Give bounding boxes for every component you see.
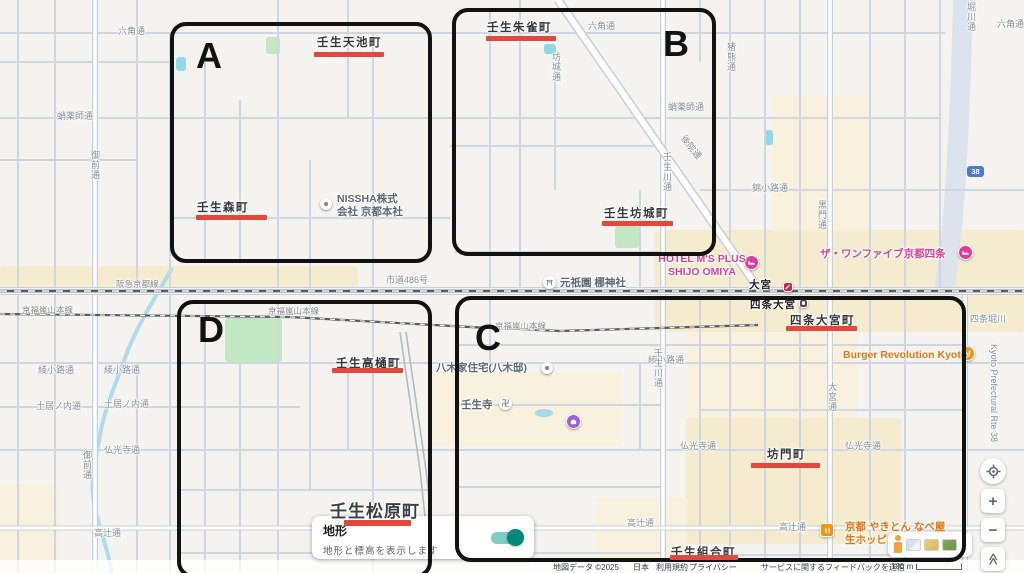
poi-layer: NISSHA株式 会社 京都本社八木家住宅(八木邸)元祇園 梛神社卍壬生寺HOT… (0, 0, 1024, 573)
zoom-out-button[interactable]: − (981, 518, 1005, 542)
attribution-link[interactable]: 利用規約 (656, 562, 688, 573)
toggle-track[interactable] (491, 532, 521, 544)
my-location-button[interactable] (980, 458, 1006, 484)
my-location-icon (986, 464, 1001, 479)
terrain-toggle[interactable] (478, 516, 534, 559)
poi-label[interactable]: HOTEL M'S PLUS SHIJO OMIYA (656, 253, 748, 278)
poi-station_red-icon[interactable] (783, 282, 793, 292)
collapse-chevrons-icon: ≪ (986, 553, 1000, 566)
collapse-button[interactable]: ≪ (981, 547, 1005, 571)
attribution-link[interactable]: プライバシー (689, 562, 737, 573)
poi-label[interactable]: Burger Revolution Kyoto (843, 349, 967, 362)
poi-museum-icon[interactable] (566, 414, 581, 429)
toggle-knob[interactable] (507, 529, 524, 546)
poi-shrine-icon[interactable] (543, 276, 556, 289)
poi-pin-icon[interactable] (541, 362, 553, 374)
poi-shield-icon[interactable]: 38 (967, 166, 984, 177)
attribution-text: 100 m (891, 562, 913, 571)
attribution-bar: 地図データ ©2025日本利用規約プライバシーサービスに関するフィードバックを送… (0, 560, 1024, 573)
attribution-text: 日本 (633, 562, 649, 573)
terrain-thumbnail[interactable] (924, 539, 939, 551)
map-application: 六角通六角通六角通蛸薬師通蛸薬師通錦小路通綾小路通綾小路通綾小路通土居ノ内通土居… (0, 0, 1024, 573)
poi-label[interactable]: 元祇園 梛神社 (560, 277, 626, 290)
terrain-subtitle: 地形と標高を表示します (323, 543, 478, 557)
poi-pin-icon[interactable] (320, 198, 332, 210)
zoom-in-button[interactable]: + (981, 489, 1005, 513)
map-style-thumbnail[interactable] (906, 539, 921, 551)
satellite-thumbnail[interactable] (942, 539, 957, 551)
poi-manji-icon[interactable]: 卍 (499, 397, 512, 410)
map-controls: + − ≪ (980, 458, 1006, 571)
imagery-strip (888, 532, 972, 557)
poi-tram-icon[interactable] (799, 299, 808, 308)
poi-label[interactable]: ザ・ワンファイブ京都四条 (820, 248, 946, 261)
poi-food_sq-icon[interactable] (820, 523, 834, 537)
scale-bar (916, 564, 962, 570)
poi-label[interactable]: 壬生寺 (461, 399, 493, 412)
poi-hotel-icon[interactable] (958, 245, 973, 260)
attribution-text: 地図データ ©2025 (553, 562, 619, 573)
attribution-link[interactable]: サービスに関するフィードバックを送信 (761, 562, 905, 573)
terrain-card: 地形 地形と標高を表示します (312, 516, 534, 559)
pegman-icon[interactable] (893, 535, 903, 554)
terrain-title: 地形 (323, 522, 478, 539)
poi-label[interactable]: 八木家住宅(八木邸) (436, 362, 527, 375)
map-canvas[interactable]: 六角通六角通六角通蛸薬師通蛸薬師通錦小路通綾小路通綾小路通綾小路通土居ノ内通土居… (0, 0, 1024, 573)
poi-label[interactable]: NISSHA株式 会社 京都本社 (337, 193, 403, 218)
